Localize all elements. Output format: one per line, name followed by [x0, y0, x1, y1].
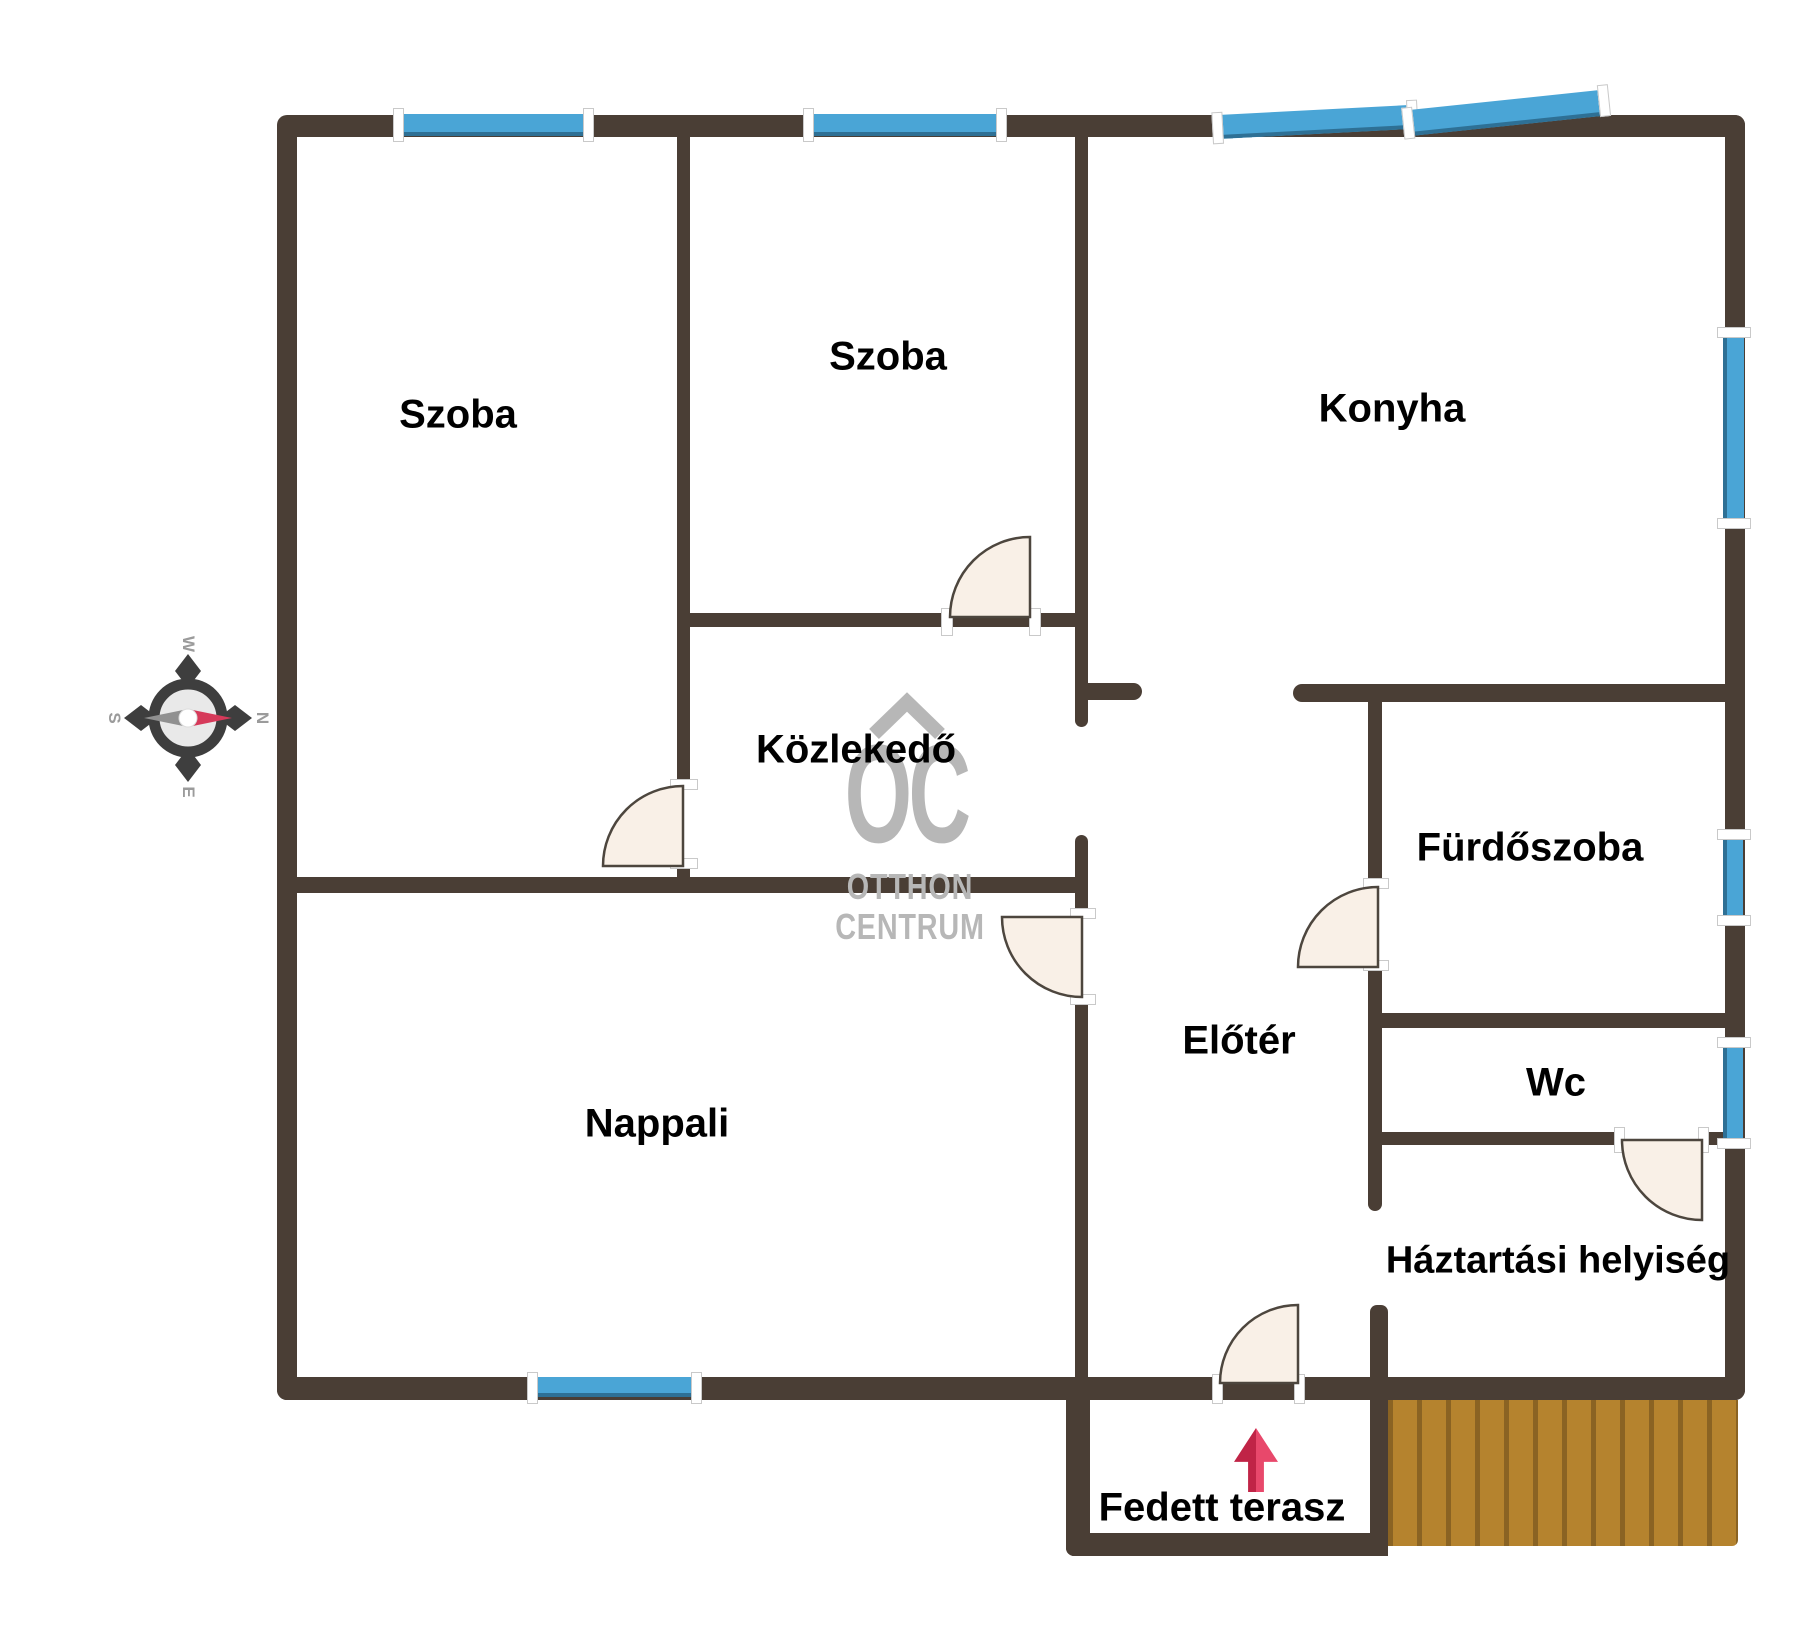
wall-konyha-entry-stub: [1088, 683, 1142, 700]
window-jamb: [1717, 915, 1751, 926]
door-jamb: [1294, 1374, 1305, 1404]
door-swing-szoba1: [603, 786, 683, 866]
room-label-haztartasi: Háztartási helyiség: [1386, 1240, 1730, 1283]
compass-letter-south: S: [104, 712, 124, 723]
room-label-nappali: Nappali: [585, 1102, 729, 1147]
window-jamb: [691, 1372, 702, 1404]
entrance-arrow-icon: [1234, 1428, 1278, 1492]
window-nappali: [535, 1377, 693, 1397]
door-jamb: [1614, 1127, 1625, 1153]
room-label-wc: Wc: [1526, 1061, 1586, 1106]
door-jamb: [941, 608, 953, 636]
window-konyha-top-left: [1211, 99, 1417, 146]
wall-szoba-divider: [677, 137, 690, 788]
wood-deck: [1388, 1400, 1738, 1546]
wall-terasz-east: [1370, 1305, 1388, 1556]
wall-wc-haztartasi: [1382, 1132, 1622, 1145]
window-szoba1: [400, 114, 585, 136]
window-jamb: [393, 108, 404, 142]
door-swing-furdoszoba: [1298, 887, 1378, 967]
window-konyha-east: [1723, 335, 1744, 520]
logo-text-otthon: OTTHON: [847, 869, 973, 905]
door-swing-szoba2: [950, 537, 1030, 617]
wall-konyha-south: [1293, 684, 1745, 702]
wall-eloter-west-lower: [1075, 997, 1088, 1400]
door-jamb: [1363, 878, 1389, 889]
wall-eloter-west-upper: [1075, 835, 1088, 915]
logo-text-centrum: CENTRUM: [835, 909, 985, 945]
floor-plan: OC OTTHON CENTRUM Szoba Szoba Konyha Köz…: [0, 0, 1820, 1640]
door-jamb: [1363, 960, 1389, 971]
window-jamb: [1717, 1037, 1751, 1048]
wall-outer-left: [277, 115, 297, 1400]
wall-szoba2-south: [690, 613, 1077, 627]
window-jamb: [1717, 518, 1751, 529]
compass-icon: W S N E: [108, 638, 268, 798]
window-furdoszoba: [1723, 837, 1743, 917]
compass-letter-west: W: [178, 636, 198, 652]
wall-szoba2-konyha: [1075, 137, 1088, 727]
door-jamb: [1070, 908, 1096, 919]
door-jamb: [1070, 994, 1096, 1005]
window-wc: [1723, 1045, 1743, 1140]
door-jamb: [1698, 1127, 1709, 1153]
room-label-eloter: Előtér: [1182, 1019, 1295, 1064]
door-swing-entrance: [1220, 1305, 1298, 1383]
wall-outer-bottom: [277, 1377, 1745, 1400]
window-jamb: [1597, 84, 1611, 117]
room-label-szoba1: Szoba: [399, 393, 517, 438]
room-label-terasz: Fedett terasz: [1099, 1486, 1346, 1531]
door-jamb: [670, 779, 698, 790]
window-jamb: [1717, 829, 1751, 840]
door-jamb: [670, 858, 698, 869]
wall-furdoszoba-west: [1368, 702, 1382, 885]
wall-terasz-south: [1066, 1533, 1388, 1556]
door-swing-nappali: [1002, 917, 1082, 997]
door-swing-wc: [1622, 1140, 1702, 1220]
wall-outer-right: [1725, 115, 1745, 1400]
window-jamb: [1211, 112, 1224, 145]
room-label-kozlekedo: Közlekedő: [756, 728, 956, 773]
room-label-konyha: Konyha: [1319, 387, 1466, 432]
door-jamb: [1029, 608, 1041, 636]
window-jamb: [527, 1372, 538, 1404]
window-szoba2: [810, 114, 998, 136]
window-jamb: [583, 108, 594, 142]
window-jamb: [996, 108, 1007, 142]
window-jamb: [803, 108, 814, 142]
room-label-furdoszoba: Fürdőszoba: [1417, 826, 1644, 871]
compass-letter-north: N: [252, 712, 272, 724]
window-jamb: [1717, 1138, 1751, 1149]
compass-letter-east: E: [178, 786, 198, 797]
wall-eloter-east: [1368, 967, 1382, 1211]
door-jamb: [1212, 1374, 1223, 1404]
window-jamb: [1717, 327, 1751, 338]
wall-furdoszoba-wc: [1382, 1013, 1725, 1028]
room-label-szoba2: Szoba: [829, 335, 947, 380]
